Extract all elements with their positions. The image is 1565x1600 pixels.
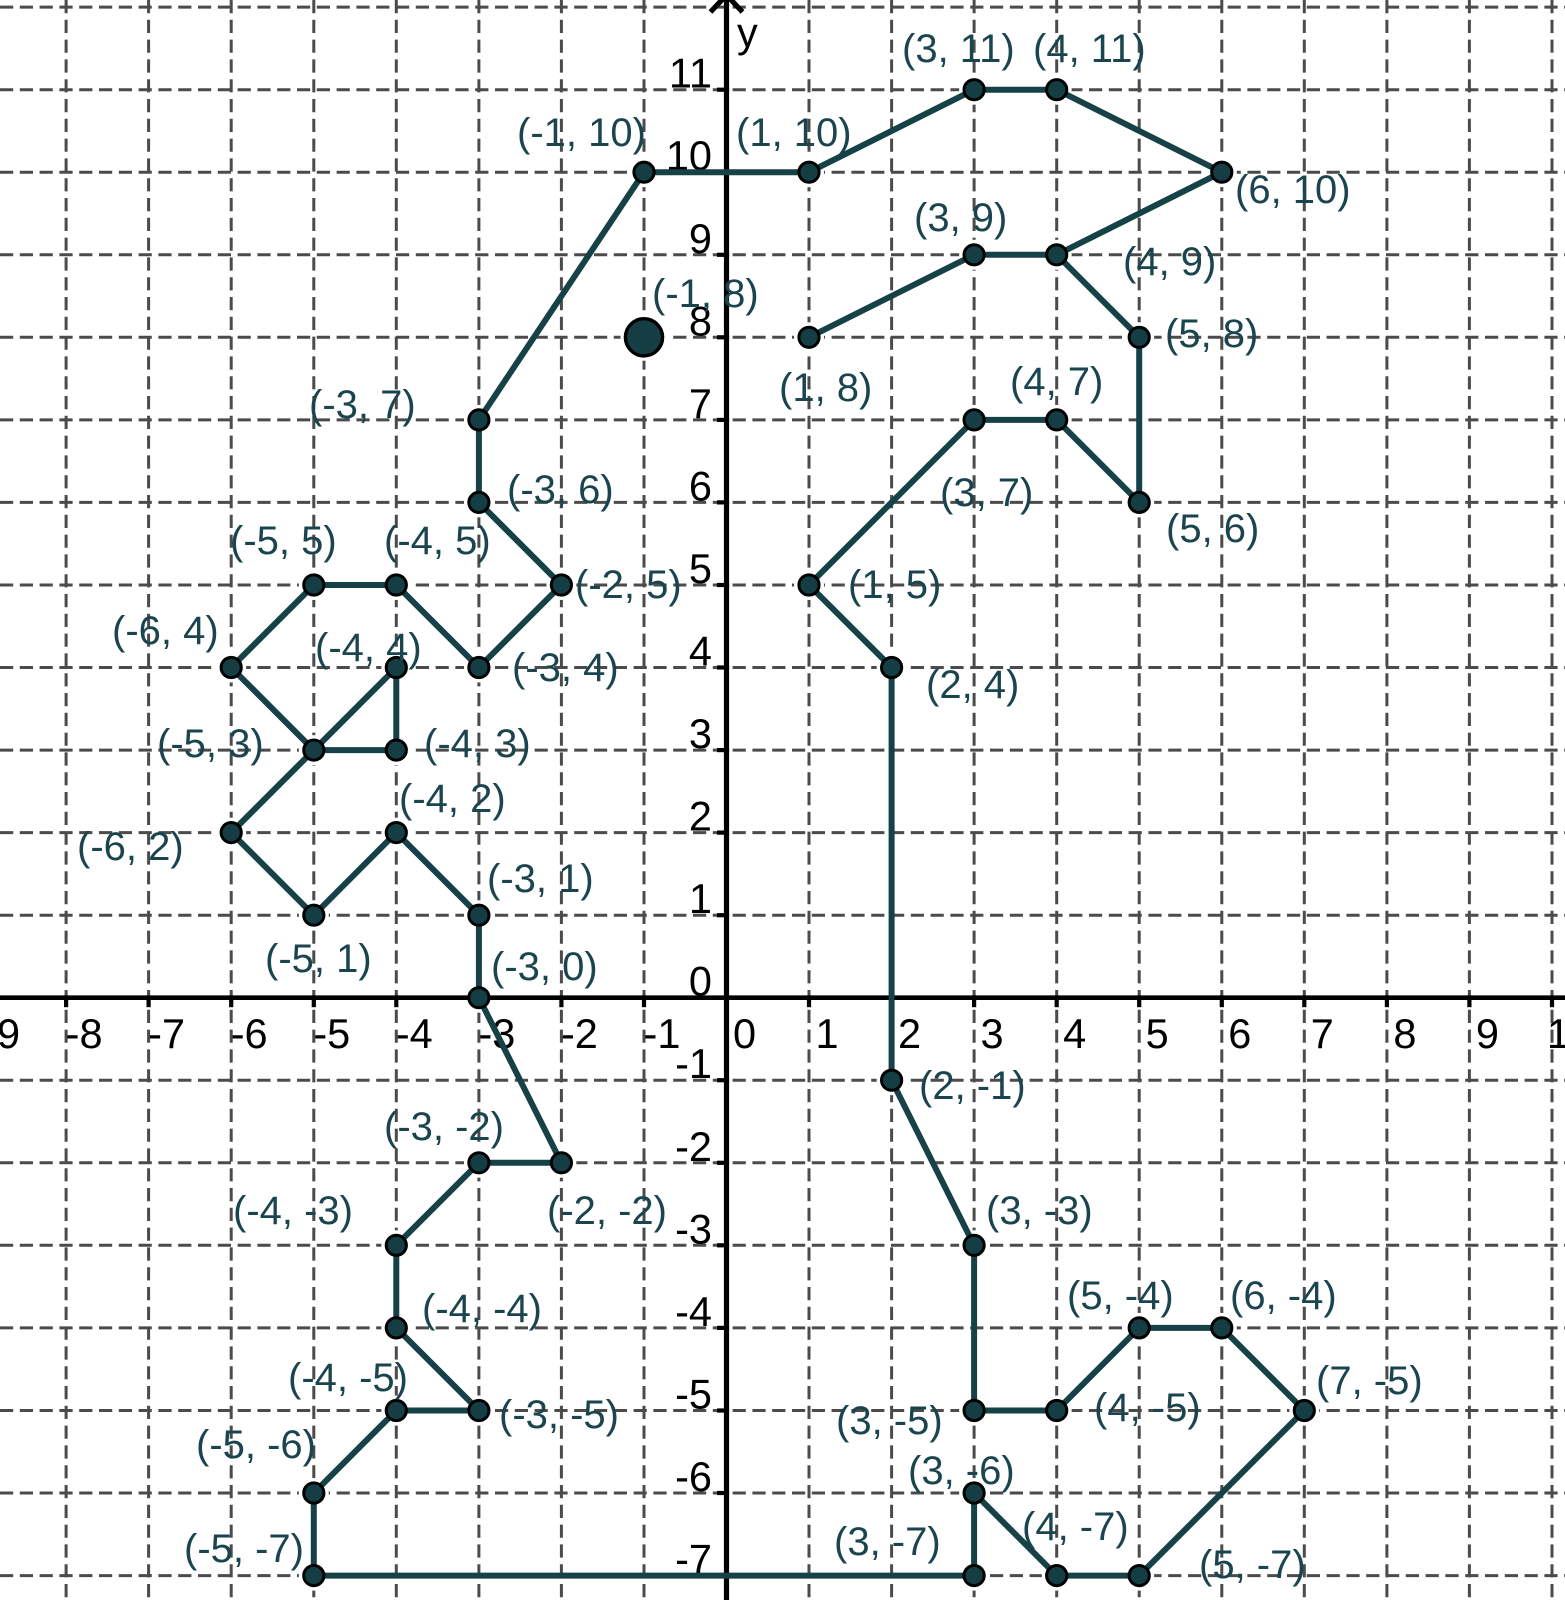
svg-text:(1, 10): (1, 10) <box>736 111 852 155</box>
svg-text:y: y <box>737 9 758 56</box>
svg-text:-1: -1 <box>675 1040 712 1087</box>
svg-text:3: 3 <box>689 710 712 757</box>
svg-text:(-4, 2): (-4, 2) <box>399 777 506 821</box>
svg-text:(2, 4): (2, 4) <box>926 663 1019 707</box>
svg-text:(3, -7): (3, -7) <box>834 1520 941 1564</box>
svg-text:11: 11 <box>669 50 712 97</box>
svg-text:5: 5 <box>1146 1010 1169 1057</box>
svg-text:3: 3 <box>981 1010 1004 1057</box>
svg-text:(4, -5): (4, -5) <box>1094 1386 1201 1430</box>
svg-text:6: 6 <box>1228 1010 1251 1057</box>
svg-text:(3, 9): (3, 9) <box>914 196 1007 240</box>
svg-text:(-3, 1): (-3, 1) <box>487 857 594 901</box>
svg-text:9: 9 <box>1476 1010 1499 1057</box>
svg-text:-2: -2 <box>561 1010 598 1057</box>
svg-text:10: 10 <box>1547 1010 1565 1057</box>
svg-text:(3, -5): (3, -5) <box>836 1399 943 1443</box>
svg-text:9: 9 <box>689 215 712 262</box>
svg-text:(4, 11): (4, 11) <box>1033 27 1146 71</box>
svg-text:(-1, 8): (-1, 8) <box>652 272 759 316</box>
svg-text:7: 7 <box>689 380 712 427</box>
svg-text:-7: -7 <box>148 1010 185 1057</box>
svg-text:(6, -4): (6, -4) <box>1230 1274 1337 1318</box>
svg-text:(5, 8): (5, 8) <box>1165 312 1258 356</box>
svg-text:8: 8 <box>1393 1010 1416 1057</box>
svg-text:-4: -4 <box>675 1288 712 1335</box>
svg-text:-3: -3 <box>675 1205 712 1252</box>
svg-text:(4, 7): (4, 7) <box>1010 360 1103 404</box>
svg-text:7: 7 <box>1311 1010 1334 1057</box>
svg-text:(6, 10): (6, 10) <box>1235 168 1351 212</box>
svg-text:(-3, 4): (-3, 4) <box>512 646 619 690</box>
svg-text:(-5, 3): (-5, 3) <box>157 722 264 766</box>
svg-text:(-1, 10): (-1, 10) <box>517 111 646 155</box>
svg-text:(1, 8): (1, 8) <box>779 366 872 410</box>
svg-text:(1, 5): (1, 5) <box>848 563 941 607</box>
svg-text:(-6, 2): (-6, 2) <box>77 825 184 869</box>
svg-text:(-6, 4): (-6, 4) <box>112 609 219 653</box>
svg-text:-2: -2 <box>675 1123 712 1170</box>
svg-text:6: 6 <box>689 462 712 509</box>
svg-text:5: 5 <box>689 545 712 592</box>
svg-text:(4, -7): (4, -7) <box>1022 1505 1129 1549</box>
svg-text:(-4, -4): (-4, -4) <box>422 1287 542 1331</box>
svg-text:-4: -4 <box>396 1010 433 1057</box>
svg-text:-8: -8 <box>66 1010 103 1057</box>
svg-text:(5, -4): (5, -4) <box>1067 1274 1174 1318</box>
svg-text:-9: -9 <box>0 1010 20 1057</box>
svg-text:2: 2 <box>898 1010 921 1057</box>
svg-text:(-3, 0): (-3, 0) <box>491 945 598 989</box>
svg-text:(-4, 3): (-4, 3) <box>424 722 531 766</box>
svg-text:1: 1 <box>689 875 712 922</box>
svg-text:(-5, 1): (-5, 1) <box>265 937 372 981</box>
svg-text:(-4, -5): (-4, -5) <box>288 1356 408 1400</box>
svg-text:0: 0 <box>733 1010 756 1057</box>
svg-text:(-5, -7): (-5, -7) <box>184 1527 304 1571</box>
svg-text:(-3, -2): (-3, -2) <box>384 1105 504 1149</box>
svg-text:(-4, -3): (-4, -3) <box>233 1189 353 1233</box>
svg-text:(-3, 6): (-3, 6) <box>507 468 614 512</box>
svg-text:(2, -1): (2, -1) <box>919 1064 1026 1108</box>
svg-text:(3, 11): (3, 11) <box>902 27 1015 71</box>
svg-text:(3, -6): (3, -6) <box>908 1449 1015 1493</box>
svg-text:(5, 6): (5, 6) <box>1166 507 1259 551</box>
svg-text:(-3, 7): (-3, 7) <box>309 383 416 427</box>
svg-text:0: 0 <box>689 958 712 1005</box>
svg-text:-6: -6 <box>675 1453 712 1500</box>
svg-text:(-4, 4): (-4, 4) <box>315 626 422 670</box>
svg-text:(-2, 5): (-2, 5) <box>575 563 682 607</box>
svg-text:4: 4 <box>1063 1010 1086 1057</box>
svg-text:(-2, -2): (-2, -2) <box>547 1189 667 1233</box>
svg-text:(3, 7): (3, 7) <box>940 471 1033 515</box>
svg-text:(-4, 5): (-4, 5) <box>384 519 491 563</box>
svg-text:-6: -6 <box>231 1010 268 1057</box>
svg-text:2: 2 <box>689 793 712 840</box>
svg-text:(-3, -5): (-3, -5) <box>499 1393 619 1437</box>
svg-text:(-5, -6): (-5, -6) <box>196 1423 316 1467</box>
svg-text:-5: -5 <box>313 1010 350 1057</box>
svg-text:-5: -5 <box>675 1371 712 1418</box>
svg-text:1: 1 <box>815 1010 838 1057</box>
svg-text:4: 4 <box>689 628 712 675</box>
svg-text:(4, 9): (4, 9) <box>1123 240 1216 284</box>
svg-text:(3, -3): (3, -3) <box>986 1189 1093 1233</box>
svg-text:(7, -5): (7, -5) <box>1316 1359 1423 1403</box>
svg-text:(-5, 5): (-5, 5) <box>230 519 337 563</box>
svg-text:(5, -7): (5, -7) <box>1199 1543 1306 1587</box>
